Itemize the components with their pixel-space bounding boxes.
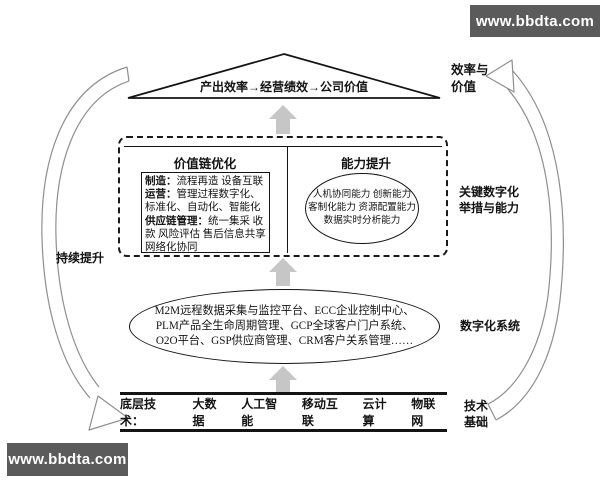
systems-ellipse-text: M2M远程数据采集与监控平台、ECC企业控制中心、 PLM产品全生命周期管理、G…: [155, 304, 415, 349]
value-chain-item-label: 供应链管理：: [145, 216, 208, 227]
value-chain-item-label: 运营：: [145, 189, 177, 200]
value-chain-detail-box: 制造：流程再造 设备互联 运营：管理过程数字化、标准化、自动化、智能化 供应链管…: [141, 172, 270, 253]
panel-divider-horizontal: [124, 146, 442, 147]
up-arrow-icon: [269, 105, 297, 134]
capability-title: 能力提升: [288, 153, 444, 172]
arrowhead-icon: [486, 60, 514, 92]
base-tech-item: 人工智能: [241, 395, 289, 429]
watermark-bottom-left: www.bbdta.com: [7, 443, 128, 476]
value-chain-item-label: 制造：: [145, 176, 177, 187]
base-tech-item: 物联网: [411, 395, 447, 429]
label-digital-system: 数字化系统: [460, 319, 520, 335]
label-tech-base: 技术 基础: [464, 399, 488, 430]
base-tech-bar: 底层技术： 大数据 人工智能 移动互联 云计算 物联网: [120, 392, 447, 432]
up-arrow-icon: [269, 258, 297, 286]
capability-text: 人机协同能力 创新能力 客制化能力 资源配置能力 数据实时分析能力: [308, 189, 416, 227]
systems-ellipse: M2M远程数据采集与监控平台、ECC企业控制中心、 PLM产品全生命周期管理、G…: [129, 289, 440, 364]
base-tech-item: 大数据: [193, 395, 229, 429]
triangle-label: 产出效率→经营绩效→公司价值: [134, 78, 434, 95]
base-tech-item: 云计算: [363, 395, 399, 429]
value-chain-item-text: 流程再造 设备互联: [177, 176, 264, 187]
up-arrow-icon: [269, 366, 297, 392]
label-continuous-improve: 持续提升: [56, 251, 104, 267]
value-chain-title: 价值链优化: [124, 153, 286, 172]
right-cycle-arrow: [486, 60, 563, 420]
label-key-digital: 关键数字化 举措与能力: [459, 185, 519, 216]
label-efficiency-value: 效率与 价值: [451, 62, 489, 96]
capability-ellipse: 人机协同能力 创新能力 客制化能力 资源配置能力 数据实时分析能力: [305, 173, 419, 244]
watermark-top-right: www.bbdta.com: [470, 5, 600, 37]
diagram-canvas: www.bbdta.com www.bbdta.com 产出效率→经营绩效→公司…: [0, 0, 600, 480]
base-tech-item: 移动互联: [302, 395, 350, 429]
base-tech-label: 底层技术：: [120, 395, 180, 429]
key-measures-panel: 价值链优化 制造：流程再造 设备互联 运营：管理过程数字化、标准化、自动化、智能…: [118, 136, 448, 257]
left-cycle-arrow: [42, 67, 129, 430]
